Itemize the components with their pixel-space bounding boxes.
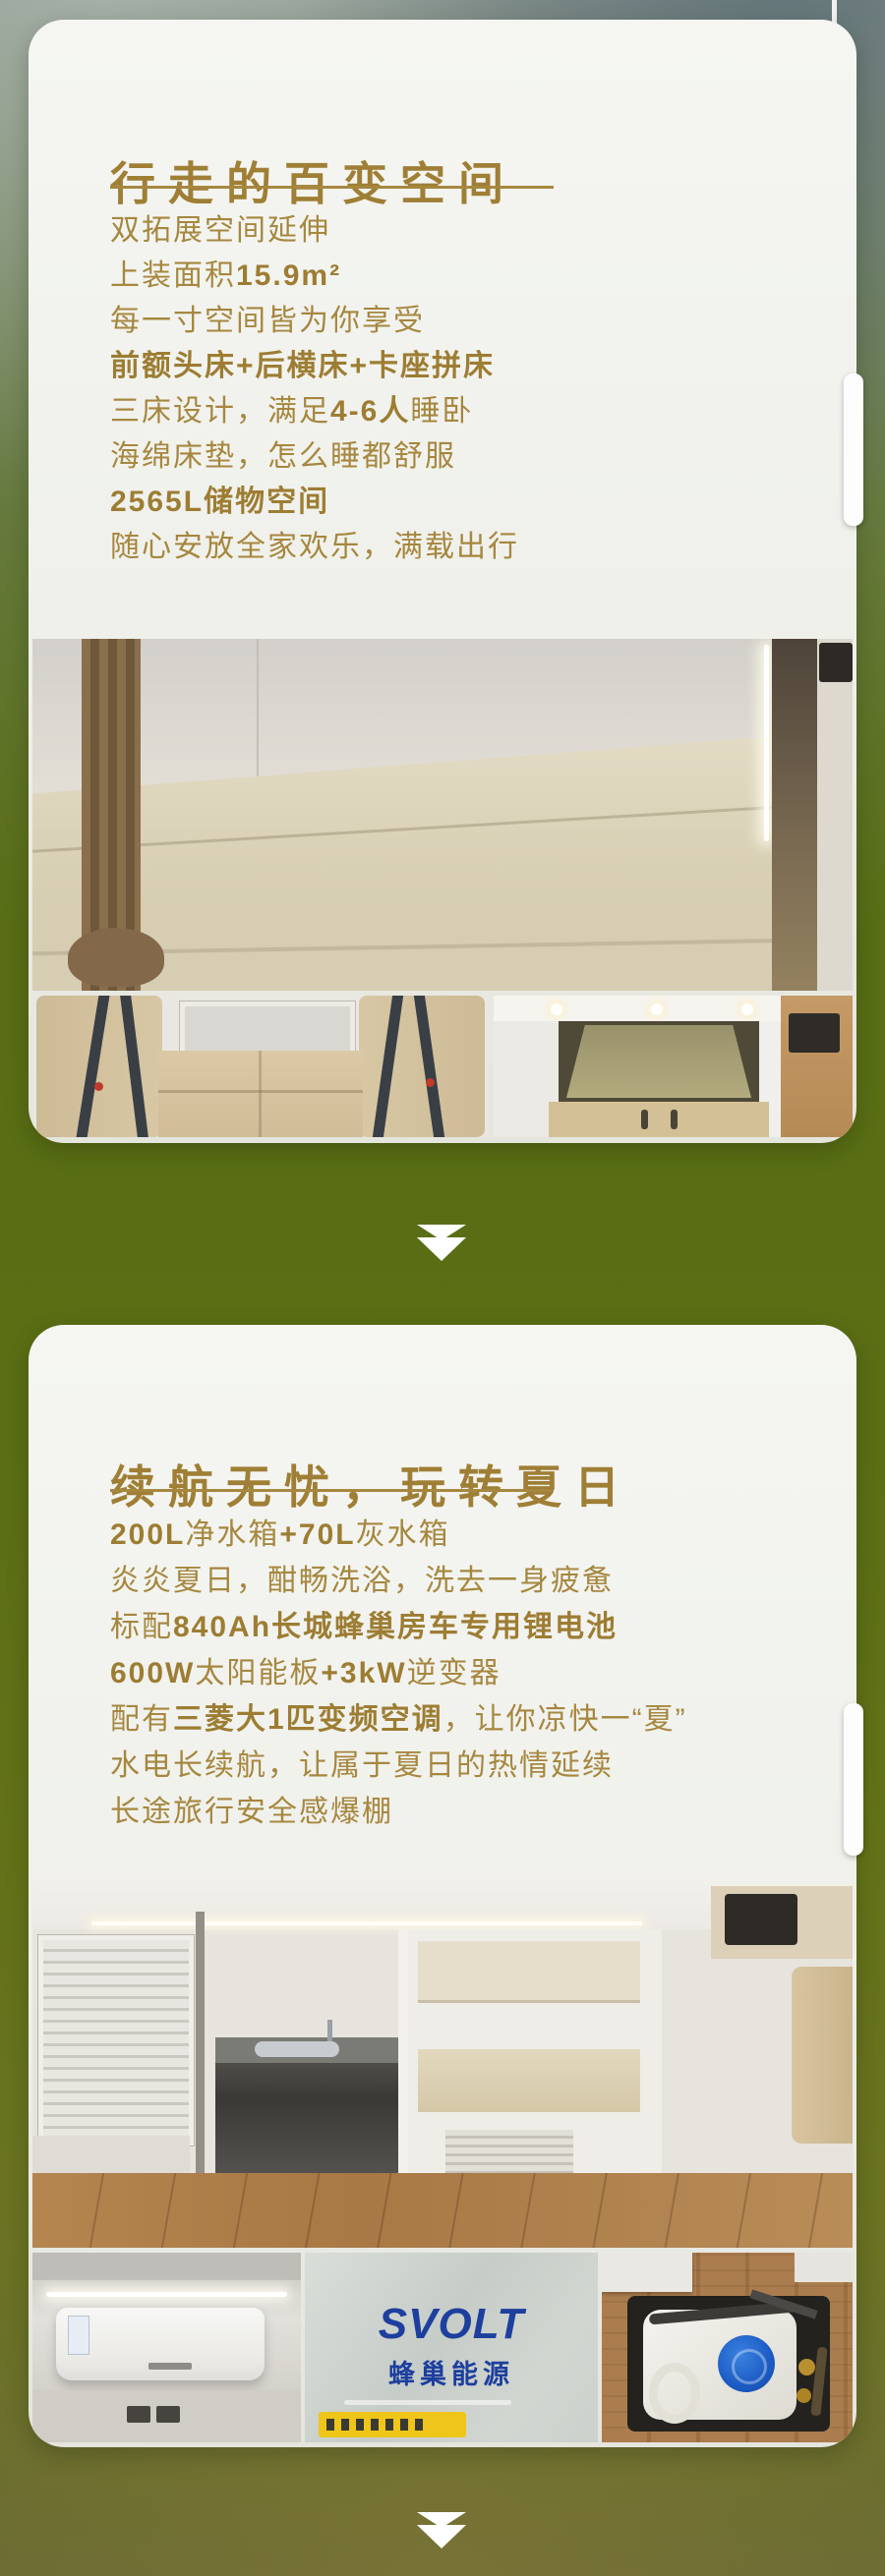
wood-pillar xyxy=(772,639,817,991)
feature-lines: 双拓展空间延伸上装面积15.9m²每一寸空间皆为你享受前额头床+后横床+卡座拼床… xyxy=(110,208,818,570)
ceiling-light xyxy=(651,1003,663,1015)
feature-line: 炎炎夏日，酣畅洗浴，洗去一身疲惫 xyxy=(110,1558,818,1604)
sticker-text-marks xyxy=(326,2419,429,2431)
bed-photo xyxy=(32,639,853,991)
shelf xyxy=(32,2253,301,2280)
belt-buckle xyxy=(426,1078,435,1087)
brand-mark xyxy=(148,2363,192,2370)
feature-text-segment: 840Ah长城蜂巢房车专用锂电池 xyxy=(173,1611,618,1643)
feature-line: 前额头床+后横床+卡座拼床 xyxy=(110,344,818,389)
feature-text-segment: 太阳能板 xyxy=(195,1657,321,1689)
led-strip xyxy=(91,1921,642,1925)
feature-text-segment: 睡卧 xyxy=(410,395,473,428)
feature-text-segment: 炎炎夏日，酣畅洗浴，洗去一身疲惫 xyxy=(110,1565,614,1597)
feature-line: 双拓展空间延伸 xyxy=(110,208,818,254)
feature-text-segment: 每一寸空间皆为你享受 xyxy=(110,305,425,337)
title-underline xyxy=(110,186,554,189)
dark-panel xyxy=(819,643,853,682)
rear-bed xyxy=(418,2049,640,2112)
dark-screen xyxy=(789,1013,840,1053)
feature-text-segment: 净水箱 xyxy=(185,1518,279,1551)
drawer-handle xyxy=(641,1110,648,1129)
stored-mattress xyxy=(566,1025,751,1098)
drawer-front xyxy=(549,1102,769,1137)
sink xyxy=(255,2041,339,2057)
feature-lines: 200L净水箱+70L灰水箱炎炎夏日，酣畅洗浴，洗去一身疲惫标配840Ah长城蜂… xyxy=(110,1512,818,1835)
svolt-logo-text: SVOLT xyxy=(305,2300,598,2349)
feature-text-segment: +3kW xyxy=(321,1657,406,1689)
feature-line: 上装面积15.9m² xyxy=(110,254,818,299)
section-title: 行走的百变空间 xyxy=(110,148,516,213)
garage-photo xyxy=(494,996,853,1137)
feature-line: 三床设计，满足4-6人睡卧 xyxy=(110,389,818,434)
cabinet xyxy=(817,639,853,991)
feature-text-segment: 长途旅行安全感爆棚 xyxy=(110,1796,393,1828)
feature-text-segment: ，让你凉快一“夏” xyxy=(443,1703,687,1736)
feature-text-segment: 双拓展空间延伸 xyxy=(110,214,330,247)
faucet xyxy=(327,2020,332,2041)
feature-text-segment: 200L xyxy=(110,1518,185,1551)
floating-widget-tab xyxy=(844,373,863,526)
feature-text-segment: 配有 xyxy=(110,1703,173,1736)
air-conditioner-photo xyxy=(32,2253,301,2442)
feature-text-segment: 三床设计，满足 xyxy=(110,395,330,428)
brass-fitting xyxy=(798,2359,815,2376)
step-ledge xyxy=(602,2253,692,2292)
brass-fitting xyxy=(796,2388,811,2403)
white-hose-loop xyxy=(649,2363,700,2424)
window-blinds xyxy=(38,1935,194,2146)
upper-cabinet xyxy=(418,1941,640,2003)
feature-text-segment: 三菱大1匹变频空调 xyxy=(173,1703,443,1736)
feature-text-segment: 逆变器 xyxy=(407,1657,501,1689)
feature-line: 海绵床垫，怎么睡都舒服 xyxy=(110,434,818,480)
rv-promo-article: 行走的百变空间 双拓展空间延伸上装面积15.9m²每一寸空间皆为你享受前额头床+… xyxy=(0,0,885,2576)
scroll-down-arrow-icon xyxy=(416,1225,467,1262)
feature-text-segment: 灰水箱 xyxy=(356,1518,450,1551)
case-highlight xyxy=(344,2400,511,2405)
feature-line: 标配840Ah长城蜂巢房车专用锂电池 xyxy=(110,1604,818,1650)
scroll-down-arrow-icon xyxy=(416,2512,467,2549)
svolt-logo-cn-text: 蜂巢能源 xyxy=(305,2353,598,2391)
feature-text-segment: 标配 xyxy=(110,1611,173,1643)
power-section-card: 续航无忧，玩转夏日 200L净水箱+70L灰水箱炎炎夏日，酣畅洗浴，洗去一身疲惫… xyxy=(29,1325,856,2447)
vent xyxy=(127,2406,150,2423)
belt-buckle xyxy=(94,1082,103,1091)
cushion-seam xyxy=(259,1051,262,1137)
feature-text-segment: 前额头床+后横床+卡座拼床 xyxy=(110,350,495,382)
section-title: 续航无忧，玩转夏日 xyxy=(110,1452,632,1517)
feature-line: 2565L储物空间 xyxy=(110,480,818,525)
space-section-card: 行走的百变空间 双拓展空间延伸上装面积15.9m²每一寸空间皆为你享受前额头床+… xyxy=(29,20,856,1143)
step-ledge xyxy=(795,2253,853,2282)
feature-line: 200L净水箱+70L灰水箱 xyxy=(110,1512,818,1558)
wall-corner xyxy=(257,639,259,788)
feature-line: 每一寸空间皆为你享受 xyxy=(110,299,818,344)
dinette-photo xyxy=(32,996,489,1137)
curtain-fold xyxy=(68,928,164,988)
feature-line: 600W太阳能板+3kW逆变器 xyxy=(110,1650,818,1696)
watertank-photo xyxy=(602,2253,853,2442)
lid-ring xyxy=(732,2349,767,2384)
feature-text-segment: 随心安放全家欢乐，满载出行 xyxy=(110,531,519,563)
feature-line: 随心安放全家欢乐，满载出行 xyxy=(110,525,818,570)
led-strip xyxy=(46,2292,287,2297)
window xyxy=(180,1002,355,1057)
title-underline xyxy=(110,1489,554,1492)
vent xyxy=(156,2406,180,2423)
interior-photo xyxy=(32,1872,853,2248)
energy-label xyxy=(68,2316,89,2355)
side-seat xyxy=(792,1967,853,2144)
led-strip xyxy=(764,645,769,841)
door-frame xyxy=(196,1912,205,2197)
vent-grille xyxy=(445,2130,573,2173)
ceiling-light xyxy=(741,1003,753,1015)
feature-text-segment: 4-6人 xyxy=(330,395,410,428)
feature-text-segment: 海绵床垫，怎么睡都舒服 xyxy=(110,440,456,473)
floor-planks xyxy=(32,2173,853,2248)
pillar xyxy=(398,1929,408,2175)
floating-widget-tab xyxy=(844,1703,863,1856)
tv-panel xyxy=(725,1894,797,1945)
ceiling-light xyxy=(551,1003,562,1015)
drawer-handle xyxy=(671,1110,678,1129)
battery-photo: SVOLT 蜂巢能源 xyxy=(305,2253,598,2442)
feature-line: 配有三菱大1匹变频空调，让你凉快一“夏” xyxy=(110,1696,818,1743)
feature-text-segment: 水电长续航，让属于夏日的热情延续 xyxy=(110,1749,614,1782)
kitchen-cabinet xyxy=(215,2063,398,2181)
feature-text-segment: 600W xyxy=(110,1657,195,1689)
feature-text-segment: +70L xyxy=(279,1518,355,1551)
feature-text-segment: 15.9m² xyxy=(236,259,341,292)
feature-text-segment: 2565L储物空间 xyxy=(110,486,329,518)
feature-line: 长途旅行安全感爆棚 xyxy=(110,1789,818,1835)
feature-text-segment: 上装面积 xyxy=(110,259,236,292)
feature-line: 水电长续航，让属于夏日的热情延续 xyxy=(110,1743,818,1789)
